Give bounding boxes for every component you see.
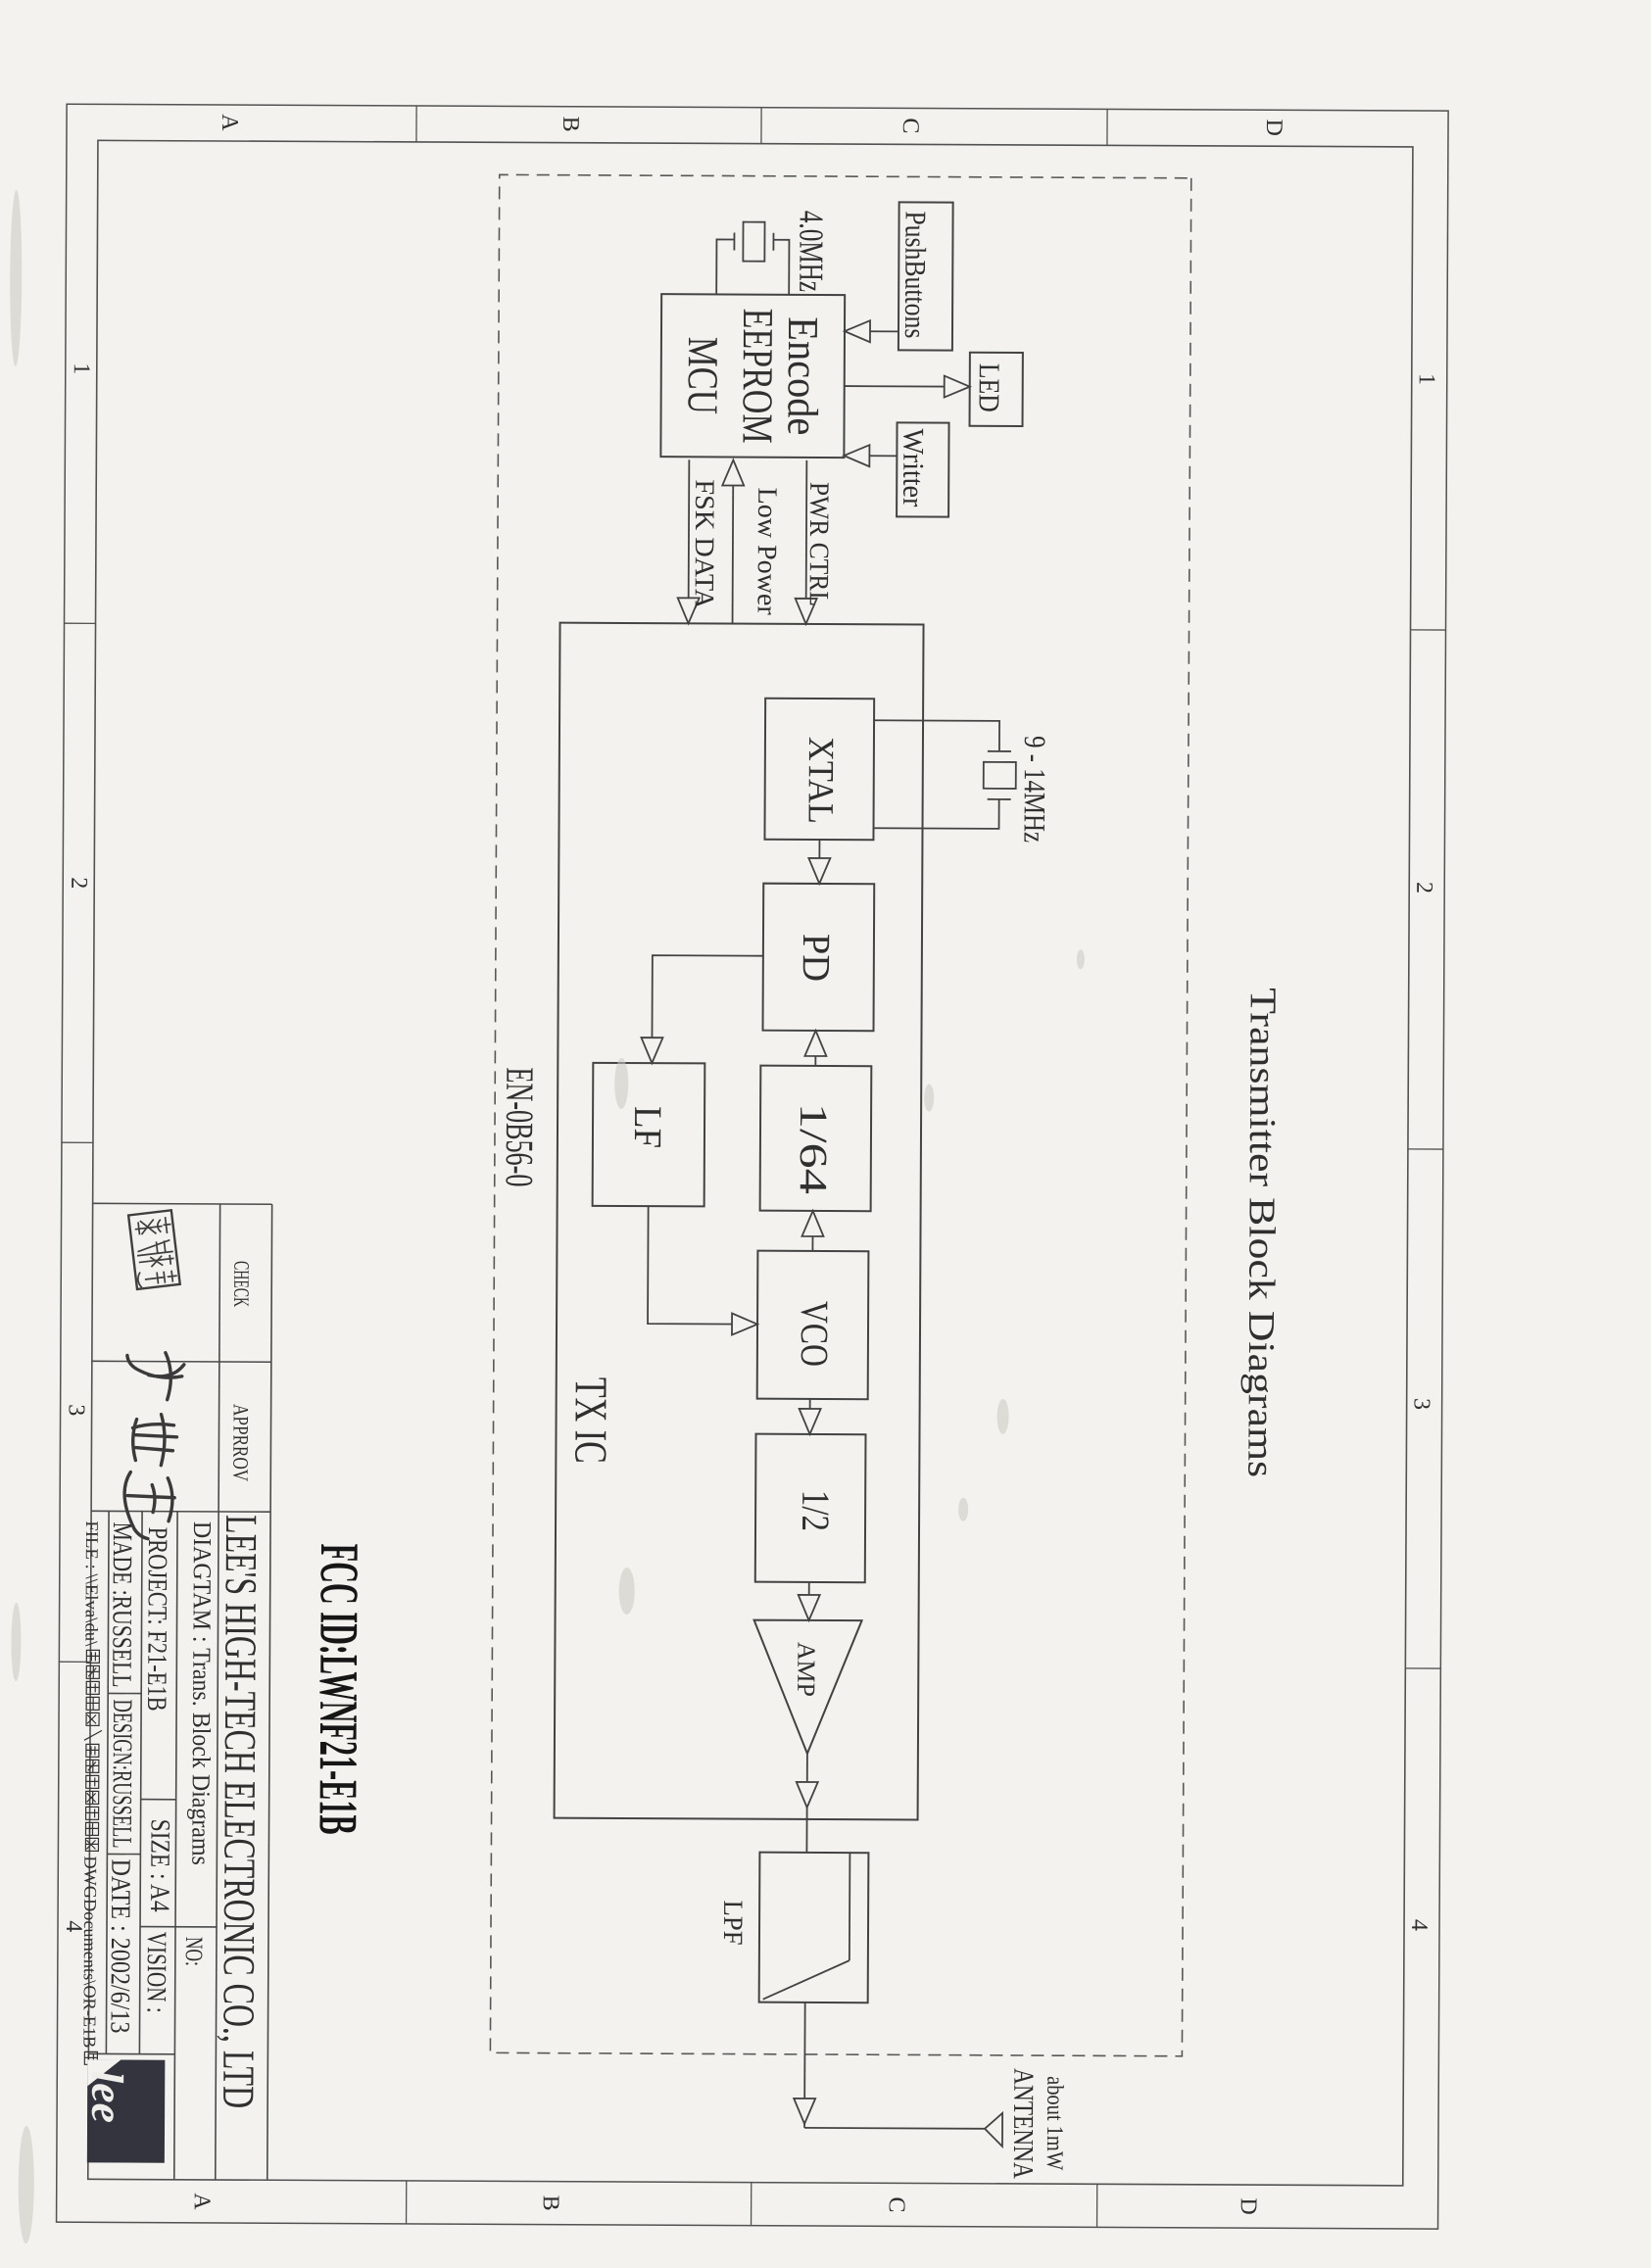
svg-text:9 - 14MHz: 9 - 14MHz (1017, 736, 1052, 843)
svg-text:A: A (217, 114, 242, 131)
svg-text:4.0MHz: 4.0MHz (792, 211, 830, 292)
svg-text:XTAL: XTAL (801, 737, 841, 824)
svg-text:DWGDocuments\OR-E1B: DWGDocuments\OR-E1B (79, 1856, 100, 2048)
svg-text:MADE :RUSSELL: MADE :RUSSELL (106, 1521, 137, 1687)
svg-text:EN-0B56-0: EN-0B56-0 (498, 1067, 543, 1186)
svg-text:CHECK: CHECK (229, 1261, 254, 1307)
svg-text:Encode: Encode (778, 316, 827, 435)
svg-text:about 1mW: about 1mW (1042, 2076, 1067, 2170)
svg-text:PWR CTRL: PWR CTRL (803, 482, 835, 606)
svg-text:1/2: 1/2 (794, 1490, 838, 1531)
svg-text:LED: LED (973, 363, 1005, 412)
svg-text:1/64: 1/64 (792, 1103, 836, 1194)
svg-text:4: 4 (1406, 1919, 1432, 1931)
svg-text:MCU: MCU (679, 337, 727, 414)
svg-text:LEE'S HIGH-TECH ELECTRONIC CO.: LEE'S HIGH-TECH ELECTRONIC CO., LTD (214, 1515, 267, 2108)
svg-text:B: B (538, 2196, 563, 2211)
svg-text:DESIGN:RUSSELL: DESIGN:RUSSELL (106, 1699, 137, 1848)
svg-text:D: D (1236, 2197, 1261, 2214)
svg-text:SIZE : A4: SIZE : A4 (144, 1819, 174, 1912)
svg-text:1: 1 (69, 362, 94, 374)
svg-text:Writter: Writter (897, 428, 929, 507)
svg-text:Low Power: Low Power (752, 488, 783, 616)
svg-text:DATE : 2002/6/13: DATE : 2002/6/13 (104, 1858, 135, 2033)
svg-text:PushButtons: PushButtons (898, 211, 932, 338)
svg-text:3: 3 (64, 1404, 89, 1416)
svg-text:NO:: NO: (180, 1937, 207, 1966)
svg-text:B: B (558, 117, 583, 132)
svg-text:VCO: VCO (793, 1301, 837, 1367)
svg-text:1: 1 (1414, 373, 1439, 385)
svg-text:TX IC: TX IC (564, 1377, 615, 1464)
svg-text:EEPROM: EEPROM (733, 309, 782, 444)
svg-text:ANTENNA: ANTENNA (1007, 2068, 1040, 2179)
svg-text:FSK DATA: FSK DATA (689, 479, 720, 609)
svg-text:FCC ID:LWNF21-E1B: FCC ID:LWNF21-E1B (307, 1543, 368, 1834)
svg-text:AMP: AMP (792, 1642, 820, 1697)
svg-text:2: 2 (66, 877, 91, 889)
svg-text:C: C (898, 118, 923, 133)
svg-text:LF: LF (626, 1106, 670, 1148)
svg-text:FILE : \\Elva\du\: FILE : \\Elva\du\ (81, 1520, 102, 1646)
svg-text:DIAGTAM : Trans. Block Diagram: DIAGTAM : Trans. Block Diagrams (186, 1521, 217, 1865)
svg-text:lee: lee (82, 2070, 132, 2123)
svg-text:LPF: LPF (717, 1900, 748, 1945)
svg-text:PD: PD (795, 934, 839, 982)
svg-text:Transmitter Block Diagrams: Transmitter Block Diagrams (1239, 988, 1283, 1477)
svg-text:2: 2 (1411, 882, 1436, 893)
svg-text:A: A (189, 2193, 215, 2210)
svg-text:C: C (884, 2196, 909, 2212)
svg-text:VISION :: VISION : (141, 1932, 171, 2013)
svg-text:PROJECT: F21-E1B: PROJECT: F21-E1B (141, 1527, 172, 1712)
svg-text:D: D (1261, 119, 1287, 135)
svg-text:3: 3 (1409, 1398, 1434, 1410)
svg-text:APPRROV: APPRROV (228, 1404, 253, 1481)
